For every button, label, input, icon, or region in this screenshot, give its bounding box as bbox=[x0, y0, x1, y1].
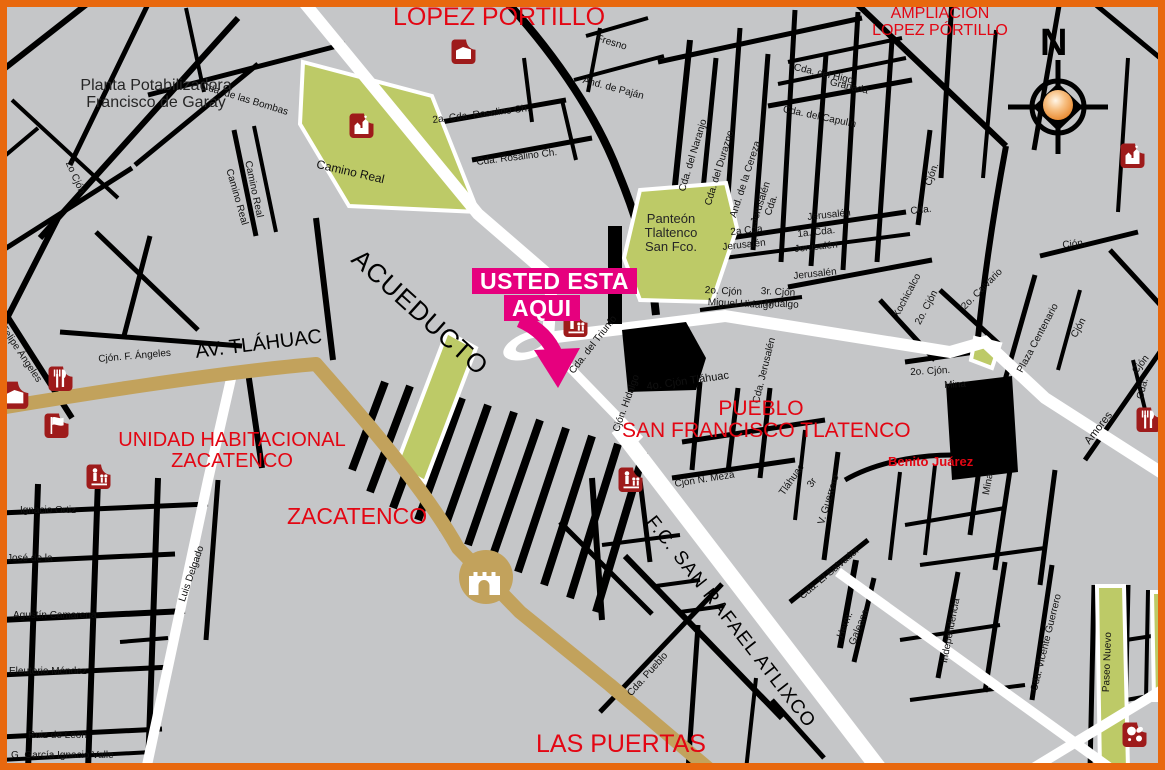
area-label-zacatenco: ZACATENCO bbox=[287, 504, 427, 528]
gate-icon bbox=[464, 556, 510, 603]
street-label: Eleuterio Méndez bbox=[9, 667, 87, 677]
map-graphics bbox=[0, 0, 1165, 770]
street-label: Mina bbox=[944, 380, 966, 391]
area-label-benito-juarez: Benito Juárez bbox=[888, 455, 973, 469]
street-label: 3r. Cjón bbox=[760, 287, 795, 299]
area-label-unidad-habitacional: UNIDAD HABITACIONAL ZACATENCO bbox=[116, 430, 348, 472]
restaurant-icon bbox=[1135, 406, 1162, 433]
area-label-pueblo-sf-tlatenco: PUEBLO SAN FRANCISCO TLATENCO bbox=[622, 398, 900, 442]
compass-north-label: N bbox=[1040, 22, 1067, 65]
compass-rose bbox=[1008, 60, 1108, 154]
flag-icon bbox=[43, 412, 70, 439]
church-icon bbox=[348, 112, 375, 139]
sports-icon bbox=[1121, 721, 1148, 748]
poi-label-panteon: Panteón Tlaltenco San Fco. bbox=[628, 212, 714, 253]
street-label: Paseo Nuevo bbox=[1102, 632, 1114, 692]
restaurant-icon bbox=[47, 365, 74, 392]
street-label: G. García Ignacio Valle bbox=[11, 751, 114, 761]
street-label: Hidalgo bbox=[764, 299, 798, 311]
street-label: 2o. Cjón. bbox=[910, 366, 950, 378]
you-are-here-label-line2: AQUI bbox=[504, 295, 580, 321]
street-label: Agustín Camarena bbox=[13, 611, 96, 621]
street-label: Ignacio Ortiz bbox=[20, 506, 76, 516]
street-label: José de la bbox=[7, 554, 53, 564]
area-label-ampliacion: AMPLIACIÓN LOPEZ PÓRTILLO bbox=[855, 6, 1025, 40]
area-label-las-puertas: LAS PUERTAS bbox=[536, 731, 706, 757]
building-icon bbox=[450, 38, 477, 65]
you-are-here-label-line1: USTED ESTA bbox=[472, 268, 637, 294]
market-icon bbox=[617, 466, 644, 493]
map: LOPEZ PÓRTILLO AMPLIACIÓN LOPEZ PÓRTILLO… bbox=[0, 0, 1165, 770]
church-icon bbox=[1119, 142, 1146, 169]
market-icon bbox=[85, 463, 112, 490]
area-label-lopez-portillo: LOPEZ PÓRTILLO bbox=[393, 4, 605, 30]
street-label: Ruiz de León bbox=[28, 731, 87, 741]
building-icon bbox=[0, 380, 30, 410]
